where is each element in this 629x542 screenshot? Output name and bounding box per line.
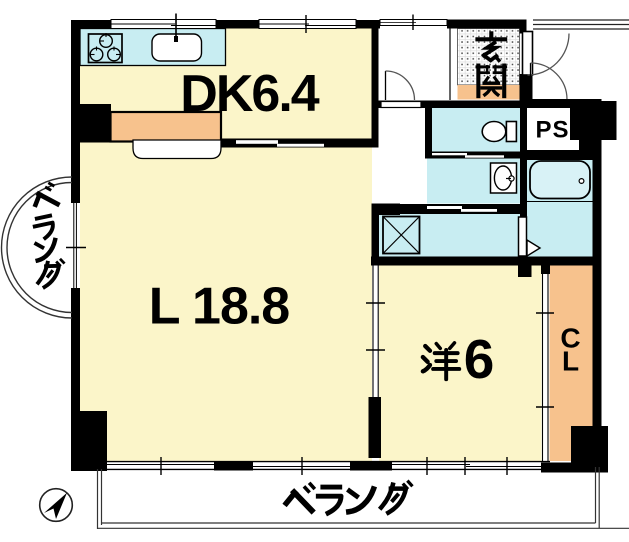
svg-text:PS: PS: [535, 117, 569, 144]
svg-text:L: L: [562, 346, 579, 377]
svg-text:L 18.8: L 18.8: [149, 278, 290, 336]
svg-text:6: 6: [464, 328, 495, 390]
svg-text:DK6.4: DK6.4: [180, 65, 319, 123]
